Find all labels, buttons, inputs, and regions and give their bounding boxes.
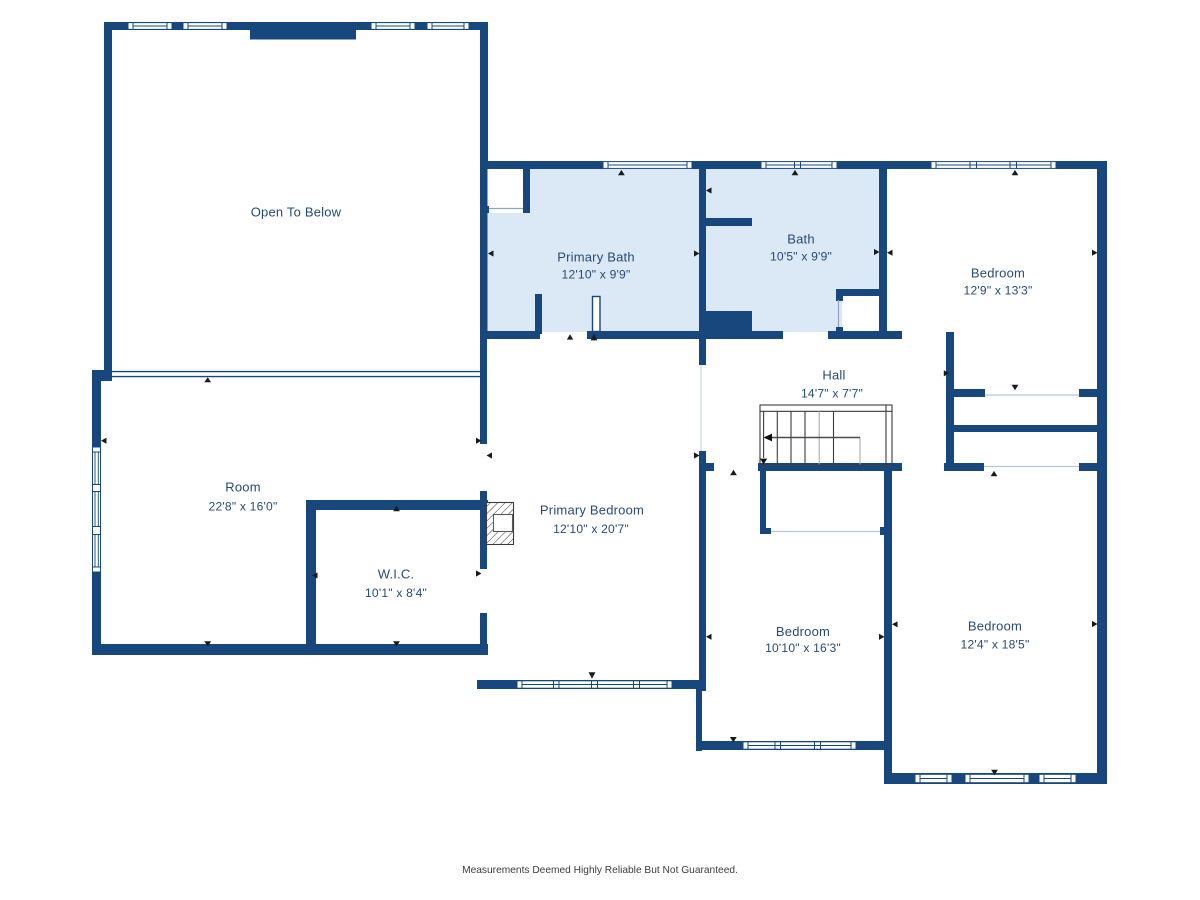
svg-text:10'10" x 16'3": 10'10" x 16'3" <box>765 641 841 655</box>
svg-text:12'10" x 20'7": 12'10" x 20'7" <box>553 522 629 536</box>
svg-text:W.I.C.: W.I.C. <box>378 567 415 582</box>
svg-text:Bedroom: Bedroom <box>971 266 1025 281</box>
svg-text:Bedroom: Bedroom <box>968 619 1022 634</box>
svg-text:10'1" x 8'4": 10'1" x 8'4" <box>365 586 427 600</box>
svg-text:Hall: Hall <box>822 368 845 383</box>
svg-text:Bedroom: Bedroom <box>776 624 830 639</box>
svg-text:Bath: Bath <box>787 232 815 247</box>
svg-text:Measurements Deemed Highly Rel: Measurements Deemed Highly Reliable But … <box>462 865 738 876</box>
svg-text:14'7" x 7'7": 14'7" x 7'7" <box>801 387 863 401</box>
svg-text:22'8" x 16'0": 22'8" x 16'0" <box>209 500 278 514</box>
svg-text:10'5" x 9'9": 10'5" x 9'9" <box>770 250 832 264</box>
svg-text:12'4" x 18'5": 12'4" x 18'5" <box>961 638 1030 652</box>
svg-text:Open To Below: Open To Below <box>251 205 342 220</box>
svg-text:Primary Bath: Primary Bath <box>557 250 635 265</box>
svg-text:Primary Bedroom: Primary Bedroom <box>540 503 644 518</box>
svg-text:12'9" x 13'3": 12'9" x 13'3" <box>964 284 1033 298</box>
svg-text:Room: Room <box>225 480 260 495</box>
svg-text:12'10" x 9'9": 12'10" x 9'9" <box>562 268 631 282</box>
